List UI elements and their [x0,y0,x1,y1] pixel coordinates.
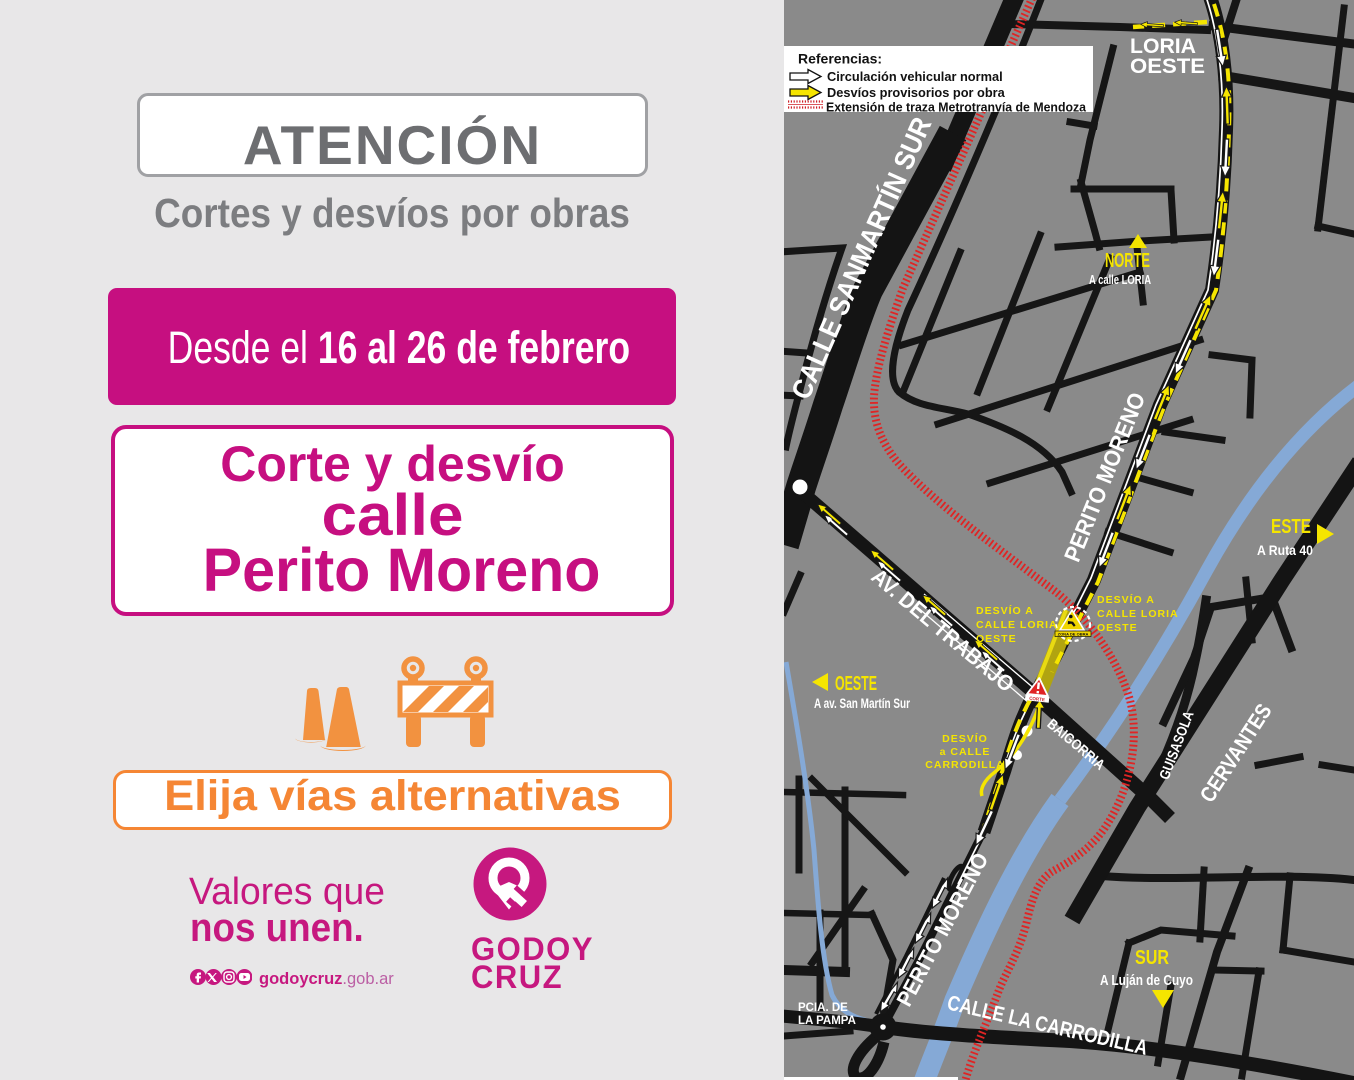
svg-text:DESVÍO: DESVÍO [942,732,988,745]
svg-text:OESTE: OESTE [1130,55,1205,78]
svg-text:A calle LORIA: A calle LORIA [1089,272,1151,287]
svg-text:CRUZ: CRUZ [471,959,563,995]
svg-text:PCIA. DE: PCIA. DE [798,1002,848,1014]
svg-text:ZONA DE OBRA: ZONA DE OBRA [1058,632,1089,637]
svg-text:NORTE: NORTE [1105,250,1150,272]
svg-text:A Luján de Cuyo: A Luján de Cuyo [1100,973,1193,989]
svg-text:Desvíos provisorios por obra: Desvíos provisorios por obra [827,85,1006,100]
svg-text:CALLE LORIA: CALLE LORIA [976,619,1058,631]
svg-text:OESTE: OESTE [976,633,1017,645]
svg-text:ESTE: ESTE [1271,516,1311,538]
svg-text:OESTE: OESTE [1097,622,1138,634]
svg-text:Circulación vehicular normal: Circulación vehicular normal [827,69,1003,84]
svg-text:Referencias:: Referencias: [798,51,882,67]
svg-text:DESVÍO A: DESVÍO A [976,604,1034,617]
svg-text:LA PAMPA: LA PAMPA [798,1015,856,1027]
svg-text:CALLE LORIA: CALLE LORIA [1097,608,1179,620]
svg-text:Extensión de traza Metrotranví: Extensión de traza Metrotranvía de Mendo… [826,100,1087,115]
svg-text:OESTE: OESTE [835,673,877,695]
svg-text:SUR: SUR [1135,947,1169,969]
svg-text:DESVÍO A: DESVÍO A [1097,593,1155,606]
svg-text:A av. San Martín Sur: A av. San Martín Sur [814,696,911,711]
svg-text:A Ruta 40: A Ruta 40 [1257,542,1313,558]
svg-text:CARRODILLA: CARRODILLA [925,759,1004,771]
svg-text:a CALLE: a CALLE [940,746,991,758]
